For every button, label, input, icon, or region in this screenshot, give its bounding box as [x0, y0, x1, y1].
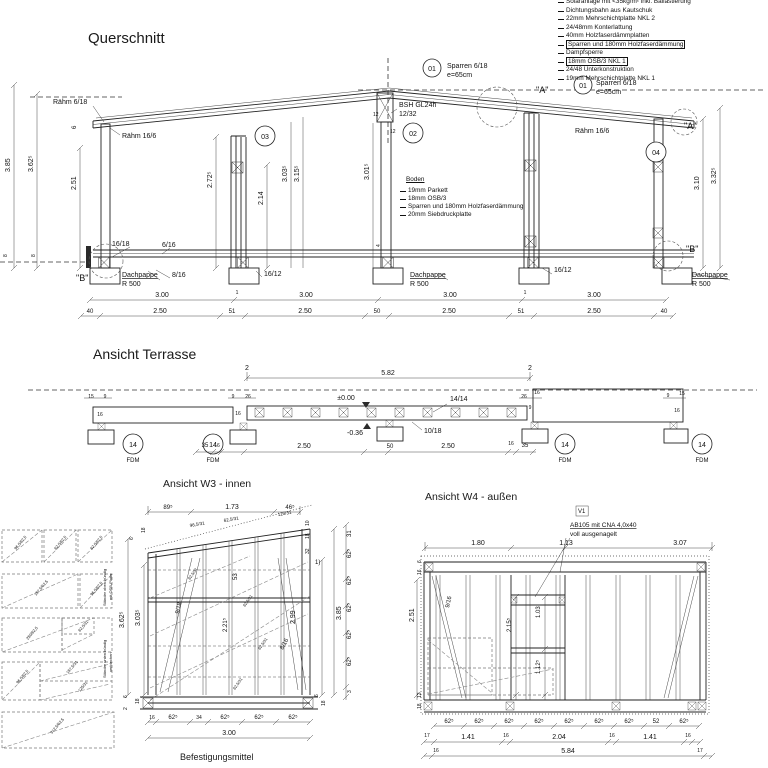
dim-label: 32 [305, 548, 311, 554]
dim-label: 31 [347, 530, 353, 537]
dim-label: 125/31 [77, 679, 89, 692]
dim-label: Ständer oben bündig [102, 569, 107, 606]
dim-label: 9 [667, 393, 670, 399]
dim-label: 62⁵ [346, 629, 353, 639]
dim-label: 62⁵ [444, 718, 454, 725]
dim-label: BSH GL24h [399, 102, 436, 109]
dim-label: 14 [129, 442, 137, 449]
dim-label: 01 [579, 83, 587, 90]
dim-label: 62⁵ [346, 575, 353, 585]
legend-item: Sparren und 180mm Holzfaserdämmung [558, 41, 763, 49]
dim-label: 62,5/31 [77, 619, 90, 633]
dim-label: 8 [31, 254, 37, 257]
legend-item: 24/48mm Konterlattung [558, 24, 763, 32]
dim-label: 2.51 [71, 176, 78, 190]
dim-label: 35 [202, 443, 209, 449]
dim-label: Dachpappe [122, 272, 158, 279]
dim-label: 2 [528, 365, 532, 372]
dim-label: 3.00 [155, 292, 169, 299]
dim-label: 34 [196, 715, 202, 721]
dim-label: e=65cm [447, 72, 472, 79]
legend-item: Dichtungsbahn aus Kautschuk [558, 7, 763, 15]
dim-label: Dachpappe [410, 272, 446, 279]
dim-label: 2.50 [297, 443, 311, 450]
dim-label: 1.03 [536, 606, 542, 618]
dim-label: 62⁵ [346, 602, 353, 612]
dim-label: R 500 [692, 281, 711, 288]
dim-label: 1.41 [461, 734, 475, 741]
dim-label: 2.51 [409, 608, 416, 622]
title-ansicht-w3: Ansicht W3 - innen [163, 478, 251, 490]
dim-label: 50 [387, 444, 394, 450]
dim-label: 1 [524, 290, 527, 296]
dim-label: 62⁵ [220, 714, 230, 721]
dim-label: 18 [135, 698, 141, 704]
dim-label: 18 [141, 527, 147, 533]
dim-label: 16 [508, 441, 514, 447]
legend-item: 24/48 Unterkonstruktion [558, 66, 763, 74]
dim-label: 18 [305, 533, 311, 539]
dim-label: e=65cm [596, 89, 621, 96]
dim-label: 16 [149, 715, 155, 721]
dim-label: FDM [559, 458, 572, 464]
dim-label: 16/12 [554, 267, 572, 274]
dim-label: 14 [209, 442, 217, 449]
w4-section [414, 538, 715, 759]
dim-label: 3.03⁵ [282, 165, 289, 182]
note-befestigungsmittel: Befestigungsmittel [180, 752, 254, 762]
dim-label: 1.80 [471, 540, 485, 547]
dim-label: 10 [305, 520, 311, 526]
dim-label: 6 [123, 695, 129, 698]
dim-label: 62⁵ [168, 714, 178, 721]
dim-label: 62⁵ [534, 718, 544, 725]
dim-label: 03 [261, 134, 269, 141]
dim-label: 12 [417, 692, 423, 698]
dim-label: 8 [3, 254, 9, 257]
dim-label: mit OSB-Platte [108, 573, 113, 600]
dim-label: "A" [684, 121, 696, 131]
dim-label: 3.01⁵ [364, 163, 371, 180]
dim-label: 2.21⁵ [222, 617, 229, 632]
dim-label: 1.73 [225, 504, 239, 511]
dim-label: 16 [685, 733, 691, 739]
dim-label: 02 [409, 131, 417, 138]
dim-label: 04 [652, 150, 660, 157]
dim-label: 4 [376, 244, 382, 247]
w3-section [125, 505, 349, 741]
dim-label: 9 [104, 394, 107, 400]
dim-label: verblechen [108, 652, 113, 672]
dim-label: 18 [321, 700, 327, 706]
dim-label: 16 [97, 412, 103, 418]
dim-label: 9/18 [175, 601, 183, 614]
dim-label: Ständer unten bündig [102, 640, 107, 678]
dim-label: 1 [236, 290, 239, 296]
dim-label: 62⁵ [474, 718, 484, 725]
dim-label: 2.14 [258, 191, 265, 205]
dim-label: 3.00 [299, 292, 313, 299]
dim-label: Sparren 6/18 [447, 63, 488, 70]
dim-label: 14 [561, 442, 569, 449]
legend-item: 40mm Holzfaserdämmplatten [558, 32, 763, 40]
dim-label: 2.50 [587, 308, 601, 315]
dim-label: 1) [315, 560, 320, 566]
dim-label: 2.04 [552, 734, 566, 741]
dim-label: 8/16 [172, 272, 186, 279]
dim-label: Rähm 16/6 [575, 128, 609, 135]
dim-label: 3.85 [336, 606, 343, 620]
dim-label: 2 [245, 365, 249, 372]
dim-label: 2.15⁵ [506, 617, 513, 632]
dim-label: 96,5/62,5 [15, 668, 30, 685]
dim-label: 16 [417, 569, 423, 575]
dim-label: voll ausgenagelt [570, 531, 617, 538]
dim-label: "B" [76, 273, 88, 283]
dim-label: FDM [127, 458, 140, 464]
dim-label: 16/18 [112, 241, 130, 248]
dim-label: 3.00 [222, 730, 236, 737]
dim-label: 3.10 [694, 176, 701, 190]
dim-label: 62,5/31 [232, 676, 244, 690]
dim-label: 14/14 [450, 396, 468, 403]
dim-label: 5.82 [381, 370, 395, 377]
dim-label: 16 [609, 733, 615, 739]
construction-drawing-sheet: Rähm 6/18Rähm 16/601Sparren 6/18e=65cm01… [0, 0, 768, 768]
dim-label: 1.13 [559, 540, 573, 547]
dim-label: 62,5/31 [257, 636, 269, 650]
dim-label: AB105 mit CNA 4,0x40 [570, 522, 637, 529]
dim-label: 15 [88, 394, 94, 400]
dim-label: 62,5/31 [242, 593, 254, 607]
dim-label: 6 [72, 125, 78, 129]
dim-label: R 500 [410, 281, 429, 288]
legend-item: Solaranlage mit <35kg/m² inkl. Ballastie… [558, 0, 763, 6]
dim-label: 3.85 [5, 158, 12, 172]
dim-label: 14 [698, 442, 706, 449]
dim-label: 6 [129, 537, 135, 540]
dim-label: 5.84 [561, 748, 575, 755]
dim-label: 2.99 [290, 610, 297, 624]
dimension-labels-layer: Rähm 6/18Rähm 16/601Sparren 6/18e=65cm01… [3, 63, 728, 755]
dim-label: 6 [314, 694, 320, 697]
dim-label: 16 [674, 408, 680, 414]
dim-label: 62⁵ [254, 714, 264, 721]
dim-label: 62⁵ [504, 718, 514, 725]
dim-label: 62⁵ [288, 714, 298, 721]
legend-item: 22mm Mehrschichtplatte NKL 2 [558, 15, 763, 23]
dim-label: 1.41 [643, 734, 657, 741]
dim-label: 89⁵ [163, 504, 173, 511]
dim-label: 40 [87, 309, 94, 315]
dim-label: 53 [233, 573, 239, 580]
dim-label: 62⁵ [346, 656, 353, 666]
dim-label: FDM [696, 458, 709, 464]
dim-label: 16 [433, 748, 439, 754]
dim-label: 62⁵ [564, 718, 574, 725]
title-ansicht-w4: Ansicht W4 - außen [425, 491, 517, 503]
dim-label: R 500 [122, 281, 141, 288]
title-ansicht-terrasse: Ansicht Terrasse [93, 346, 196, 362]
panel-layout-diagrams [2, 530, 114, 748]
dim-label: ±0.00 [337, 395, 355, 402]
drawing-linework: Rähm 6/18Rähm 16/601Sparren 6/18e=65cm01… [0, 0, 768, 768]
dim-label: 187,5/62,5 [33, 578, 49, 596]
dim-label: FDM [207, 458, 220, 464]
dim-label: 9/16 [445, 595, 453, 608]
dim-label: 12 [390, 129, 396, 135]
dim-label: 3.07 [673, 540, 687, 547]
dim-label: "A" [536, 85, 548, 95]
dim-label: Rähm 6/18 [53, 99, 87, 106]
dim-label: V1 [578, 509, 586, 515]
legend-item: 19mm Parkett [400, 187, 550, 195]
dim-label: 62⁵ [594, 718, 604, 725]
dim-label: 51 [229, 309, 236, 315]
dim-label: 3.62⁵ [28, 155, 35, 172]
dim-label: 62⁵ [679, 718, 689, 725]
legend-item: 18mm OSB/3 [400, 195, 550, 203]
dim-label: 2.50 [442, 308, 456, 315]
title-querschnitt: Querschnitt [88, 30, 165, 47]
dim-label: 26 [521, 394, 527, 400]
legend-item: Dampfsperre [558, 49, 763, 57]
dim-label: 50 [374, 309, 381, 315]
dim-label: 16 [534, 390, 540, 396]
legend-item: Sparren und 180mm Holzfaserdämmung [400, 203, 550, 211]
dim-label: 2.50 [153, 308, 167, 315]
dim-label: 2.50 [298, 308, 312, 315]
floor-legend-items: 19mm Parkett18mm OSB/3Sparren und 180mm … [400, 187, 550, 219]
dim-label: 15 [679, 391, 685, 397]
dim-label: 35 [522, 443, 529, 449]
dim-label: 62,5/31 [223, 515, 239, 523]
dim-label: 6 [417, 560, 423, 563]
dim-label: 62⁵ [346, 548, 353, 558]
legend-item: 20mm Siebdruckplatte [400, 211, 550, 219]
dim-label: 9 [232, 394, 235, 400]
terrasse-section [28, 372, 757, 455]
roof-buildup-legend: Solaranlage mit <35kg/m² inkl. Ballastie… [558, 0, 763, 83]
dim-label: 12 [373, 112, 379, 118]
dim-label: 250/62,5 [25, 625, 39, 641]
floor-legend-title: Boden [406, 176, 550, 184]
dim-label: 16/12 [264, 271, 282, 278]
dim-label: 17 [424, 733, 430, 739]
dim-label: 16 [235, 411, 241, 417]
dim-label: 17 [697, 748, 703, 754]
dim-label: Rähm 16/6 [122, 133, 156, 140]
dim-label: 12/32 [399, 111, 417, 118]
legend-item: 18mm OSB/3 NKL 1 [558, 58, 763, 66]
dim-label: 26 [245, 394, 251, 400]
dim-label: 6/16 [162, 242, 176, 249]
dim-label: 52 [653, 719, 660, 725]
dim-label: 3.00 [443, 292, 457, 299]
dim-label: 3.15⁵ [294, 165, 301, 182]
dim-label: 125/31 [277, 510, 292, 517]
dim-label: 1.12⁵ [535, 659, 542, 674]
dim-label: 16 [503, 733, 509, 739]
dim-label: 96,5/31 [189, 520, 205, 528]
dim-label: 3.62⁵ [119, 611, 126, 628]
dim-label: 18 [417, 703, 423, 709]
dim-label: 96,5/62,5 [13, 534, 28, 551]
dim-label: 01 [428, 66, 436, 73]
querschnitt-section [0, 58, 766, 319]
dim-label: 10/18 [424, 428, 442, 435]
dim-label: 3.03⁵ [135, 609, 142, 626]
floor-buildup-legend: Boden 19mm Parkett18mm OSB/3Sparren und … [400, 176, 550, 219]
dim-label: 2.50 [441, 443, 455, 450]
dim-label: 2.72⁵ [207, 171, 214, 188]
dim-label: 312,5/62,5 [49, 716, 65, 734]
dim-label: 62,5/62,5 [53, 534, 68, 551]
dim-label: 40 [661, 309, 668, 315]
dim-label: Dachpappe [692, 272, 728, 279]
dim-label: -0.36 [347, 430, 363, 437]
dim-label: 2 [123, 707, 129, 710]
dim-label: 9 [529, 405, 532, 411]
dim-label: 3 [347, 690, 353, 693]
dim-label: 62,5/62,5 [89, 534, 104, 551]
legend-item: 19mm Mehrschichtplatte NKL 1 [558, 75, 763, 83]
dim-label: 3.00 [587, 292, 601, 299]
dim-label: 51 [518, 309, 525, 315]
dim-label: "B" [686, 244, 698, 254]
dim-label: 3.32⁵ [711, 167, 718, 184]
dim-label: 62⁵ [624, 718, 634, 725]
